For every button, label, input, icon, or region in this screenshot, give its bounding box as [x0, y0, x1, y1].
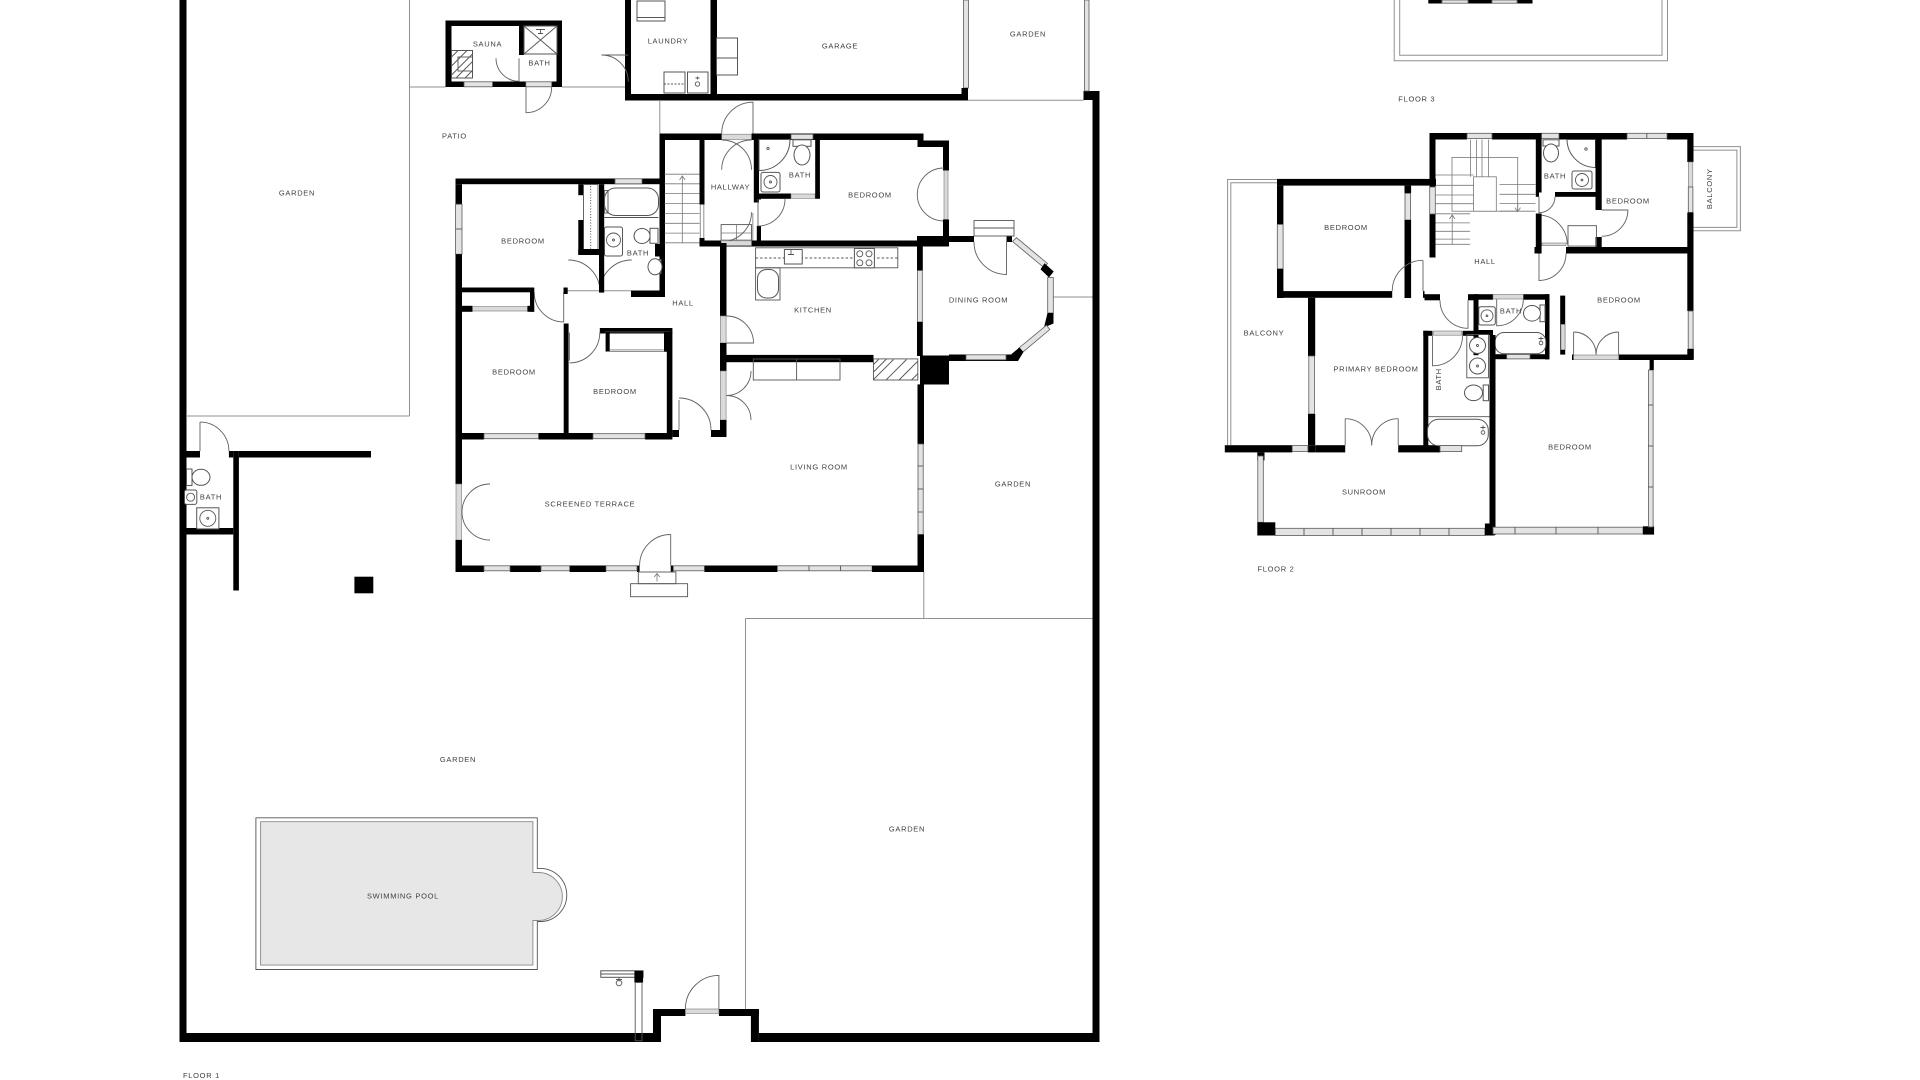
svg-text:BATH: BATH: [1500, 307, 1522, 316]
svg-text:BATH: BATH: [627, 249, 649, 258]
svg-text:GARDEN: GARDEN: [995, 480, 1031, 489]
svg-text:BATH: BATH: [789, 171, 811, 180]
svg-text:GARDEN: GARDEN: [889, 825, 925, 834]
svg-text:GARDEN: GARDEN: [1010, 30, 1046, 39]
svg-text:HALL: HALL: [1474, 257, 1496, 266]
svg-text:BEDROOM: BEDROOM: [1606, 197, 1650, 206]
svg-text:BEDROOM: BEDROOM: [501, 237, 545, 246]
svg-text:BATH: BATH: [1544, 172, 1566, 181]
svg-text:GARDEN: GARDEN: [440, 755, 476, 764]
svg-text:LIVING ROOM: LIVING ROOM: [790, 463, 848, 472]
svg-text:FLOOR 3: FLOOR 3: [1398, 94, 1435, 103]
svg-text:HALLWAY: HALLWAY: [711, 183, 750, 192]
svg-text:BATH: BATH: [528, 59, 550, 68]
svg-text:BALCONY: BALCONY: [1244, 329, 1285, 338]
svg-text:BEDROOM: BEDROOM: [492, 368, 536, 377]
svg-text:BEDROOM: BEDROOM: [848, 191, 892, 200]
svg-text:FLOOR 2: FLOOR 2: [1258, 565, 1295, 574]
svg-text:BEDROOM: BEDROOM: [1324, 223, 1368, 232]
svg-text:HALL: HALL: [672, 299, 694, 308]
svg-text:GARAGE: GARAGE: [822, 42, 858, 51]
svg-text:SAUNA: SAUNA: [473, 40, 502, 49]
svg-text:LAUNDRY: LAUNDRY: [648, 37, 689, 46]
svg-text:GARDEN: GARDEN: [279, 189, 315, 198]
svg-text:BATH: BATH: [1434, 368, 1443, 390]
svg-text:BALCONY: BALCONY: [1705, 168, 1714, 209]
svg-text:BEDROOM: BEDROOM: [593, 387, 637, 396]
svg-text:PATIO: PATIO: [442, 132, 467, 141]
svg-text:BATH: BATH: [200, 493, 222, 502]
svg-text:SWIMMING POOL: SWIMMING POOL: [367, 892, 439, 901]
svg-text:BEDROOM: BEDROOM: [1548, 443, 1592, 452]
svg-text:SCREENED TERRACE: SCREENED TERRACE: [545, 500, 636, 509]
svg-text:PRIMARY BEDROOM: PRIMARY BEDROOM: [1333, 365, 1418, 374]
svg-text:FLOOR 1: FLOOR 1: [183, 1071, 220, 1080]
svg-text:DINING ROOM: DINING ROOM: [949, 296, 1008, 305]
svg-text:SUNROOM: SUNROOM: [1342, 488, 1386, 497]
svg-text:BEDROOM: BEDROOM: [1597, 296, 1641, 305]
svg-text:KITCHEN: KITCHEN: [794, 306, 832, 315]
